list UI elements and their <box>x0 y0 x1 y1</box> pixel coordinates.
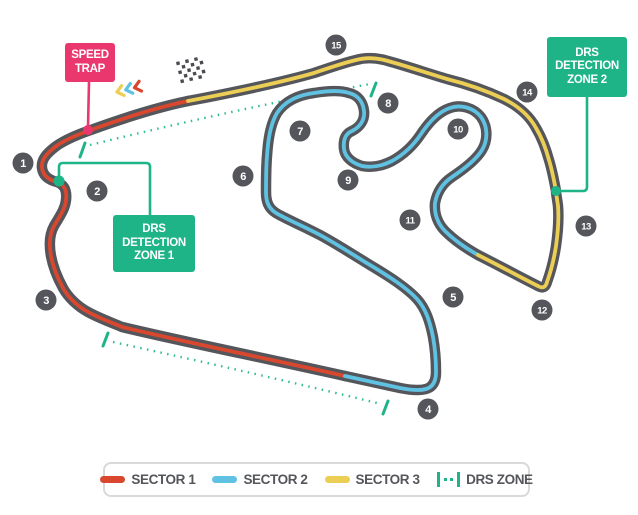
speed-trap-line1: SPEED <box>71 49 109 63</box>
sector3-swatch <box>325 476 350 483</box>
svg-text:10: 10 <box>453 125 463 136</box>
sector2-label: SECTOR 2 <box>243 472 307 487</box>
turn-marker-3: 3 <box>36 290 57 311</box>
speed-trap-label: SPEED TRAP <box>65 43 115 82</box>
svg-text:5: 5 <box>450 292 456 304</box>
turn-marker-15: 15 <box>326 35 347 56</box>
speed-trap-dot <box>83 125 93 135</box>
svg-text:3: 3 <box>43 295 49 307</box>
turn-marker-10: 10 <box>445 116 471 142</box>
checkered-flag-icon <box>176 56 207 83</box>
svg-text:15: 15 <box>331 41 342 52</box>
drs-detection-zone-2-label: DRS DETECTION ZONE 2 <box>547 37 627 97</box>
svg-text:11: 11 <box>405 216 415 227</box>
turn-marker-6: 6 <box>233 166 254 187</box>
drs-zone-label: DRS ZONE <box>466 472 533 487</box>
turn-marker-7: 7 <box>290 121 311 142</box>
legend-item-sector3: SECTOR 3 <box>325 472 420 487</box>
legend-item-drs-zone: DRS ZONE <box>437 472 533 487</box>
turn-marker-11: 11 <box>400 210 421 231</box>
turn-marker-13: 13 <box>576 216 597 237</box>
drs1-detection-dot <box>54 176 65 187</box>
circuit-map: 1 2 3 4 5 6 7 8 9 10 11 12 13 14 15 SPEE… <box>0 0 638 515</box>
drs-zone-icon <box>437 472 461 487</box>
svg-text:12: 12 <box>537 306 547 317</box>
legend-item-sector1: SECTOR 1 <box>100 472 195 487</box>
sector1-label: SECTOR 1 <box>131 472 195 487</box>
speed-chevrons-icon <box>116 81 142 97</box>
legend: SECTOR 1 SECTOR 2 SECTOR 3 DRS ZONE <box>103 462 530 497</box>
drs2-connector <box>556 97 587 191</box>
svg-text:6: 6 <box>240 171 246 183</box>
drs2-line3: ZONE 2 <box>567 74 607 88</box>
drs2-detection-dot <box>551 186 561 196</box>
turn-marker-5: 5 <box>443 287 464 308</box>
speed-trap-connector <box>88 82 89 127</box>
turn-marker-12: 12 <box>532 300 553 321</box>
sector3-label: SECTOR 3 <box>356 472 420 487</box>
turn-marker-14: 14 <box>517 82 538 103</box>
drs2-line1: DRS <box>575 47 598 61</box>
speed-trap-line2: TRAP <box>75 63 105 77</box>
svg-text:2: 2 <box>94 186 100 198</box>
drs-zone-start-marker <box>80 143 85 157</box>
turn-marker-2: 2 <box>87 181 108 202</box>
svg-text:8: 8 <box>385 98 391 110</box>
drs1-line3: ZONE 1 <box>134 250 174 264</box>
svg-text:7: 7 <box>297 126 303 138</box>
turn-marker-9: 9 <box>338 170 359 191</box>
drs-zone-start-marker <box>103 333 108 346</box>
drs1-line1: DRS <box>142 223 165 237</box>
drs2-line2: DETECTION <box>555 60 619 74</box>
svg-text:14: 14 <box>522 88 533 99</box>
svg-text:1: 1 <box>20 158 26 170</box>
drs-zone-end-marker <box>383 401 388 414</box>
legend-item-sector2: SECTOR 2 <box>212 472 307 487</box>
turn-marker-8: 8 <box>378 93 399 114</box>
svg-text:9: 9 <box>345 175 351 187</box>
drs1-line2: DETECTION <box>122 237 186 251</box>
turn-marker-1: 1 <box>13 153 34 174</box>
sector2-swatch <box>212 476 237 483</box>
svg-text:13: 13 <box>581 222 591 233</box>
drs-detection-zone-1-label: DRS DETECTION ZONE 1 <box>113 215 195 272</box>
turn-marker-4: 4 <box>418 399 439 420</box>
sector1-swatch <box>100 476 125 483</box>
drs-zone-end-marker <box>371 83 376 96</box>
